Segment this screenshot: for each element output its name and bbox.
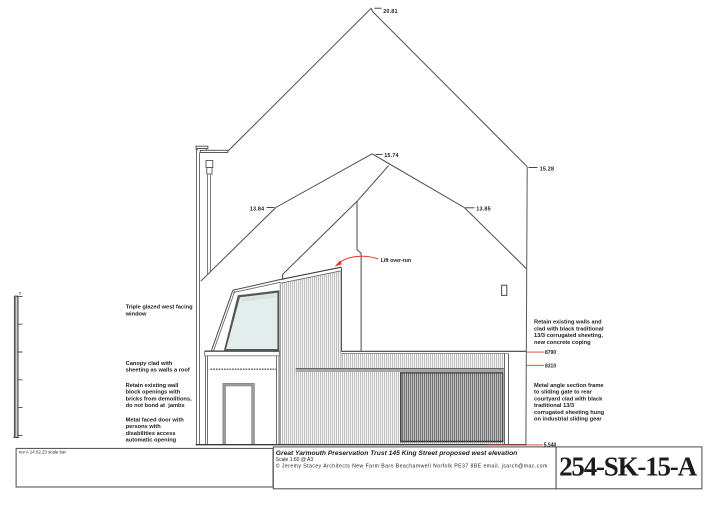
svg-text:© Jeremy Stacey Architects New: © Jeremy Stacey Architects New Farm Barn… — [276, 463, 548, 470]
svg-text:Metal faced door with: Metal faced door with — [126, 418, 185, 424]
svg-text:disabilities access: disabilities access — [126, 431, 176, 437]
svg-text:corrugated sheeting hung: corrugated sheeting hung — [534, 410, 605, 416]
svg-text:15.28: 15.28 — [540, 166, 555, 172]
svg-text:15.74: 15.74 — [384, 153, 399, 159]
svg-text:sheeting as walls a roof: sheeting as walls a roof — [126, 368, 190, 374]
svg-text:Lift over-run: Lift over-run — [381, 258, 412, 264]
svg-text:courtyard clad with black: courtyard clad with black — [534, 396, 603, 402]
svg-text:Triple glazed west facing: Triple glazed west facing — [126, 305, 194, 311]
svg-text:8310: 8310 — [545, 363, 556, 369]
svg-text:block openings with: block openings with — [126, 390, 181, 396]
svg-text:13/3 corrugated sheeting,: 13/3 corrugated sheeting, — [534, 333, 603, 339]
svg-text:Canopy clad with: Canopy clad with — [126, 361, 173, 367]
svg-text:automatic opening: automatic opening — [126, 438, 177, 444]
svg-text:13.85: 13.85 — [476, 206, 491, 212]
svg-text:traditional 13/3: traditional 13/3 — [534, 403, 574, 409]
svg-text:Scale 1:60 @ A3: Scale 1:60 @ A3 — [276, 457, 314, 463]
svg-text:Retain existing wall: Retain existing wall — [126, 383, 179, 389]
svg-text:rev A 14.02.23 scale bar: rev A 14.02.23 scale bar — [19, 450, 67, 455]
svg-text:on industrial sliding gear: on industrial sliding gear — [534, 417, 602, 423]
svg-text:Retain existing walls and: Retain existing walls and — [534, 320, 602, 326]
svg-text:8790: 8790 — [545, 350, 556, 356]
svg-text:Metal angle section frame: Metal angle section frame — [534, 383, 604, 389]
svg-text:20.81: 20.81 — [383, 9, 398, 15]
svg-text:new concrete coping: new concrete coping — [534, 340, 591, 346]
svg-text:13.84: 13.84 — [250, 206, 264, 212]
svg-text:to sliding gate to rear: to sliding gate to rear — [534, 390, 593, 396]
svg-text:bricks from demolitions,: bricks from demolitions, — [126, 396, 192, 402]
svg-text:do not bond at jambs: do not bond at jambs — [126, 403, 185, 409]
svg-text:window: window — [125, 311, 147, 317]
svg-text:persons with: persons with — [126, 424, 162, 430]
svg-text:254-SK-15-A: 254-SK-15-A — [559, 452, 697, 482]
svg-text:clad with black traditional: clad with black traditional — [534, 326, 604, 332]
